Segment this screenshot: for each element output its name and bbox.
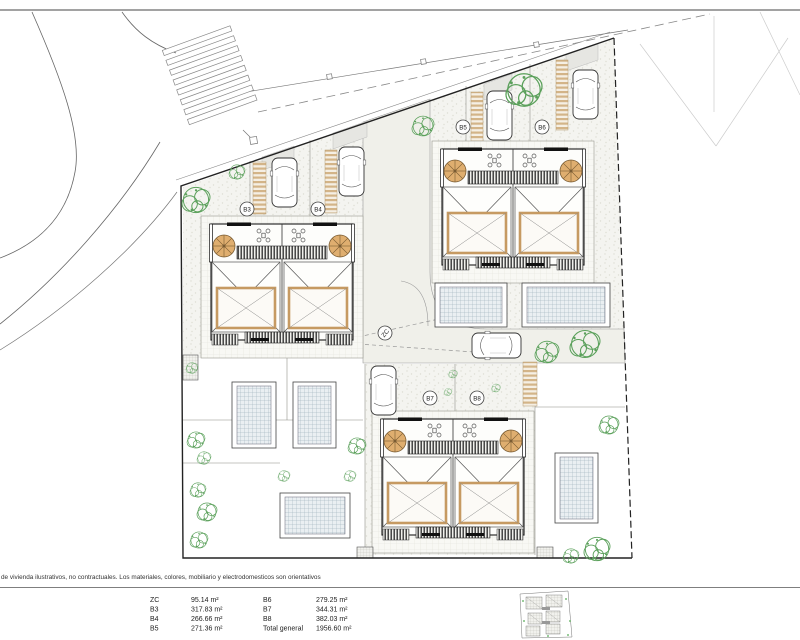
walkway-b8 <box>523 362 537 406</box>
plot-label-b7-text: B7 <box>426 395 434 402</box>
site-plan-thumbnail <box>520 591 572 638</box>
plot-label-b5: B5 <box>456 120 470 134</box>
house-b3-b4 <box>201 216 363 358</box>
plot-label-b4: B4 <box>311 202 325 216</box>
site-plan-page: B3 B4 B5 B6 B7 B8 ZC de vivienda ilustra… <box>0 0 800 640</box>
legend-value: 344.31 m² <box>316 607 348 614</box>
plot-label-b7: B7 <box>423 391 437 405</box>
sign-post-square <box>250 136 258 144</box>
pool-b6 <box>522 283 610 327</box>
car-b7 <box>369 366 398 415</box>
plot-label-b6: B6 <box>535 120 549 134</box>
legend-label: B4 <box>150 616 159 623</box>
pool-b4 <box>293 382 336 448</box>
plot-label-b8-text: B8 <box>473 395 481 402</box>
disclaimer-text: de vivienda ilustrativos, no contractual… <box>1 574 321 581</box>
pool-b8 <box>555 453 598 523</box>
plot-label-b6-text: B6 <box>538 124 546 131</box>
site-plan-drawing: B3 B4 B5 B6 B7 B8 ZC de vivienda ilustra… <box>0 0 800 640</box>
legend-label: B3 <box>150 607 159 614</box>
car-court <box>472 331 521 360</box>
plot-label-b3: B3 <box>240 202 254 216</box>
plot-label-b8: B8 <box>470 391 484 405</box>
legend-value: 317.83 m² <box>191 607 223 614</box>
pool-b3 <box>232 382 276 448</box>
house-b5-b6 <box>432 141 594 283</box>
walkway-b4 <box>325 150 337 213</box>
plot-label-b3-text: B3 <box>243 206 251 213</box>
plot-label-b5-text: B5 <box>459 124 467 131</box>
legend-value: 382.03 m² <box>316 616 348 623</box>
car-b3 <box>270 158 299 207</box>
car-b6 <box>571 70 600 119</box>
legend-label: ZC <box>150 597 159 604</box>
pool-b7 <box>280 493 350 538</box>
legend-value: 271.36 m² <box>191 626 223 633</box>
legend-label: B7 <box>263 607 272 614</box>
legend-value: 95.14 m² <box>191 597 219 604</box>
walkway-b6 <box>556 60 568 130</box>
legend-value: 279.25 m² <box>316 597 348 604</box>
legend-value: 266.66 m² <box>191 616 223 623</box>
pool-b5 <box>435 283 507 327</box>
car-b4 <box>337 147 366 196</box>
legend-label: B8 <box>263 616 272 623</box>
legend-value: 1956.60 m² <box>316 626 352 633</box>
walkway-b3 <box>253 162 266 214</box>
plot-label-b4-text: B4 <box>314 206 322 213</box>
legend-label: B5 <box>150 626 159 633</box>
legend-label: Total general <box>263 626 304 633</box>
legend-label: B6 <box>263 597 272 604</box>
house-b7-b8 <box>372 411 534 553</box>
